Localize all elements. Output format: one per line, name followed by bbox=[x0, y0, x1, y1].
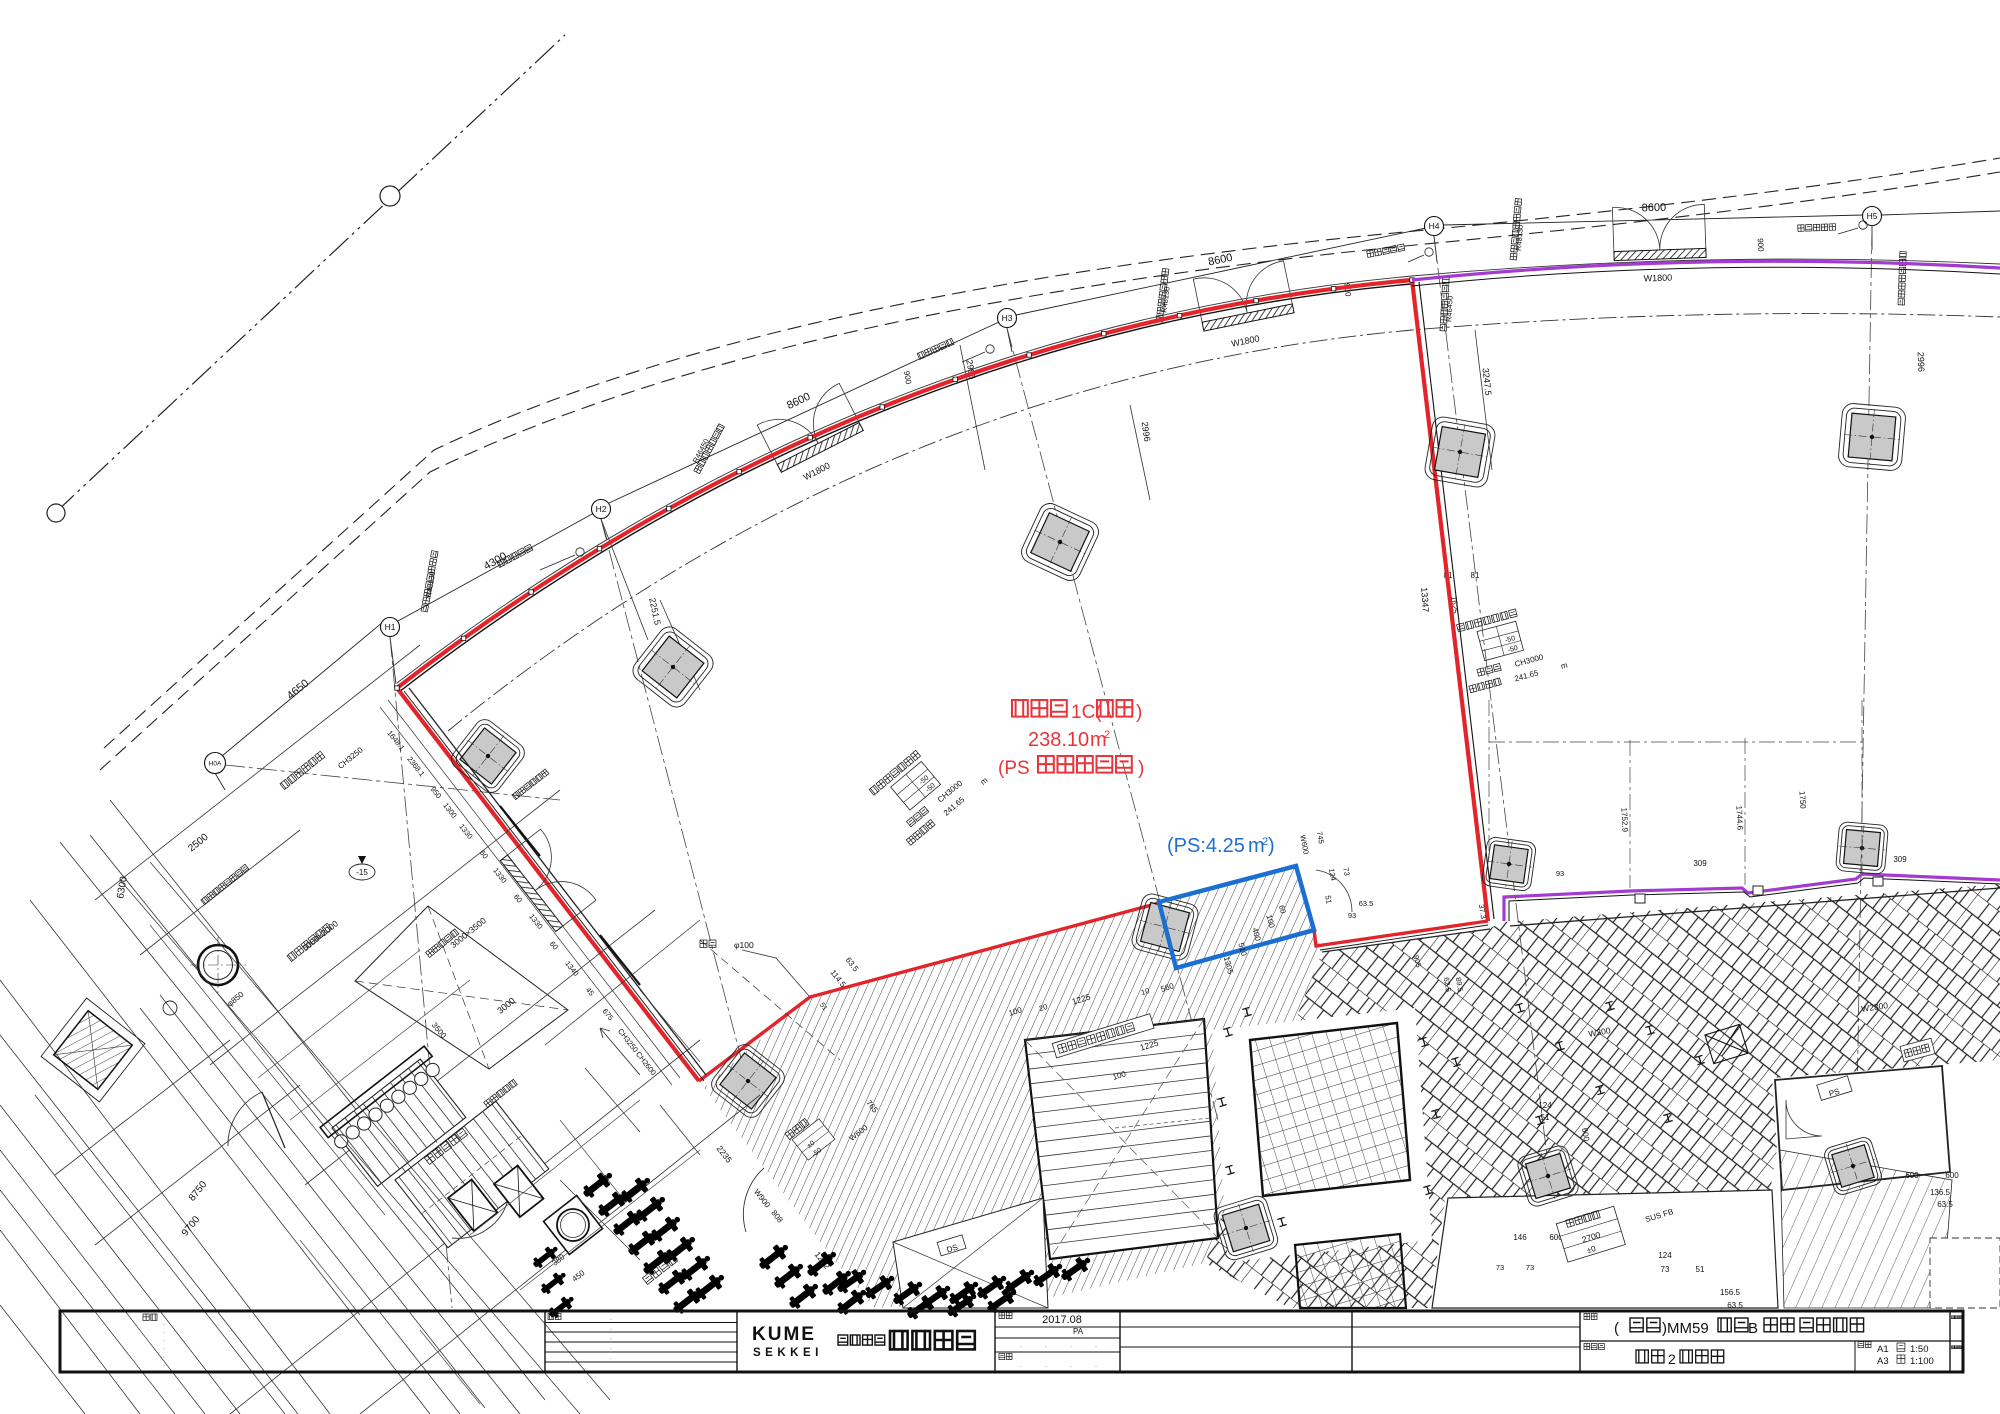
svg-text:238.10: 238.10 bbox=[1028, 729, 1089, 751]
svg-text:): ) bbox=[1268, 835, 1275, 857]
svg-text:): ) bbox=[1138, 758, 1144, 779]
svg-text:51: 51 bbox=[1323, 895, 1333, 905]
svg-text:·: · bbox=[163, 1355, 165, 1361]
svg-text:·: · bbox=[1095, 1344, 1097, 1350]
svg-text:73: 73 bbox=[1496, 1263, 1504, 1272]
svg-text:A1: A1 bbox=[1877, 1344, 1889, 1355]
svg-text:1:50: 1:50 bbox=[1910, 1344, 1929, 1355]
svg-text:81: 81 bbox=[1471, 571, 1480, 580]
svg-text:1744.6: 1744.6 bbox=[1734, 805, 1744, 830]
svg-text:600: 600 bbox=[1905, 1171, 1919, 1180]
svg-text:93: 93 bbox=[1556, 869, 1564, 878]
svg-text:73: 73 bbox=[1341, 867, 1351, 877]
svg-text:136.5: 136.5 bbox=[1930, 1188, 1951, 1197]
svg-text:·: · bbox=[163, 1322, 165, 1328]
svg-text:2996: 2996 bbox=[1916, 352, 1927, 372]
svg-text:W1800: W1800 bbox=[1643, 273, 1672, 284]
svg-text:H1: H1 bbox=[385, 622, 396, 632]
svg-text:A3: A3 bbox=[1877, 1356, 1889, 1367]
svg-text:·: · bbox=[1095, 1364, 1097, 1370]
svg-text:63.5: 63.5 bbox=[1359, 899, 1374, 908]
svg-text:13347: 13347 bbox=[1419, 587, 1431, 613]
svg-text:93: 93 bbox=[1348, 911, 1356, 920]
svg-text:309: 309 bbox=[1893, 855, 1907, 864]
svg-text:124: 124 bbox=[1658, 1251, 1672, 1260]
svg-text:73: 73 bbox=[1661, 1265, 1670, 1274]
svg-text:·: · bbox=[163, 1347, 165, 1353]
svg-text:H5: H5 bbox=[1867, 211, 1878, 221]
svg-text:8600: 8600 bbox=[1642, 202, 1667, 215]
svg-text:·: · bbox=[1070, 1344, 1072, 1350]
svg-text:·: · bbox=[610, 1346, 612, 1352]
svg-text:SEKKEI: SEKKEI bbox=[753, 1347, 823, 1359]
svg-text:·: · bbox=[1045, 1364, 1047, 1370]
svg-text:PA: PA bbox=[1073, 1327, 1084, 1336]
svg-text:·: · bbox=[1020, 1364, 1022, 1370]
svg-text:KUME: KUME bbox=[752, 1324, 816, 1345]
svg-text:600: 600 bbox=[1945, 1171, 1959, 1180]
svg-text:·: · bbox=[610, 1356, 612, 1362]
svg-text:309: 309 bbox=[1693, 859, 1707, 868]
svg-text:(PS:4.25: (PS:4.25 bbox=[1167, 835, 1245, 857]
svg-text:2: 2 bbox=[1668, 1351, 1676, 1367]
svg-text:124: 124 bbox=[1538, 1101, 1552, 1110]
svg-text:73: 73 bbox=[1526, 1263, 1534, 1272]
svg-text:·: · bbox=[610, 1327, 612, 1333]
svg-text:·: · bbox=[1045, 1344, 1047, 1350]
svg-text:(PS: (PS bbox=[998, 758, 1030, 779]
svg-text:900: 900 bbox=[1756, 238, 1766, 252]
svg-text:2: 2 bbox=[1104, 729, 1110, 741]
svg-text:156.5: 156.5 bbox=[1720, 1288, 1741, 1297]
svg-text:·: · bbox=[610, 1318, 612, 1324]
svg-text:·: · bbox=[1020, 1344, 1022, 1350]
svg-text:51: 51 bbox=[1541, 1113, 1550, 1122]
svg-text:51: 51 bbox=[1696, 1265, 1705, 1274]
svg-text:H2: H2 bbox=[596, 504, 607, 514]
svg-text:-15: -15 bbox=[356, 868, 368, 877]
svg-text:·: · bbox=[163, 1338, 165, 1344]
svg-text:B: B bbox=[1748, 1320, 1758, 1337]
svg-text:): ) bbox=[1136, 702, 1142, 723]
svg-text:(: ( bbox=[1614, 1320, 1619, 1337]
svg-text:R46450: R46450 bbox=[1444, 296, 1454, 323]
svg-text:·: · bbox=[610, 1337, 612, 1343]
svg-text:146: 146 bbox=[1513, 1233, 1527, 1242]
svg-text:·: · bbox=[163, 1330, 165, 1336]
svg-text:63.5: 63.5 bbox=[1727, 1301, 1743, 1310]
svg-text:2017.08: 2017.08 bbox=[1042, 1314, 1082, 1326]
svg-text:1752.9: 1752.9 bbox=[1619, 807, 1629, 832]
svg-text:H3: H3 bbox=[1002, 313, 1013, 323]
svg-text:φ100: φ100 bbox=[734, 940, 754, 950]
svg-text:H0A: H0A bbox=[209, 760, 222, 767]
svg-text:H4: H4 bbox=[1429, 221, 1440, 231]
svg-text:1750: 1750 bbox=[1798, 791, 1808, 810]
svg-text:·: · bbox=[163, 1363, 165, 1369]
svg-text:·: · bbox=[1070, 1364, 1072, 1370]
svg-text:63.5: 63.5 bbox=[1937, 1200, 1953, 1209]
svg-text:)MM59: )MM59 bbox=[1662, 1320, 1709, 1337]
svg-text:1:100: 1:100 bbox=[1910, 1356, 1934, 1367]
